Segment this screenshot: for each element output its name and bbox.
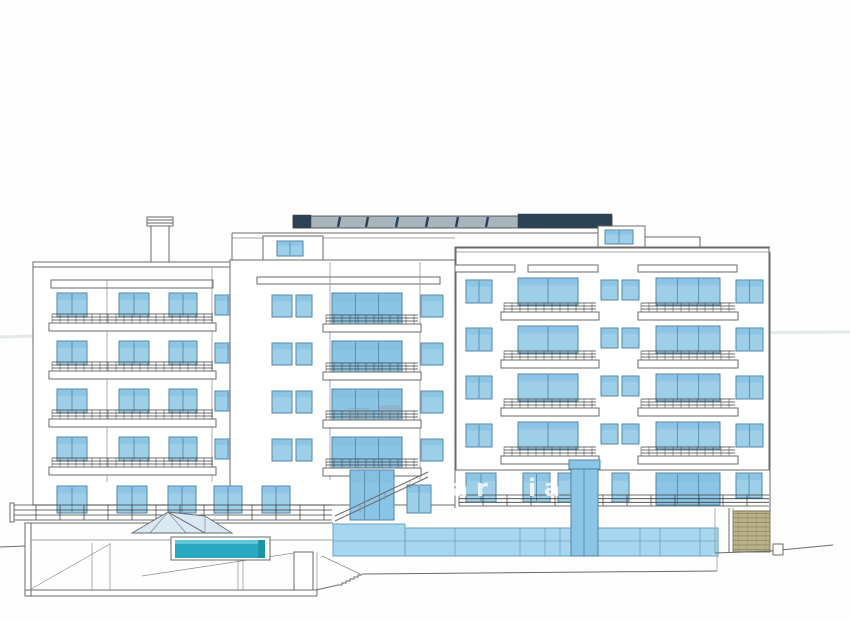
window-transom [422, 296, 442, 301]
window-transom [657, 474, 719, 482]
scan-streak [0, 336, 34, 337]
scan-smudge [345, 408, 373, 420]
window-transom [333, 390, 401, 398]
window-transom [273, 440, 291, 445]
window-transom [273, 344, 291, 349]
window-transom [623, 329, 638, 334]
balcony-slab [49, 467, 216, 475]
pool-waterline [175, 540, 265, 544]
sunshade-strip [528, 265, 598, 272]
watermark-fragment: a [452, 474, 468, 502]
window-transom [333, 342, 401, 350]
watermark-fragment: r [476, 474, 488, 502]
roof-box-right-2 [645, 237, 700, 247]
basement-left-wall [25, 523, 31, 596]
scan-smudge [377, 405, 403, 419]
window-transom [297, 440, 311, 445]
deck-glass-band [405, 528, 718, 556]
chimney [151, 226, 169, 262]
window-transom [623, 281, 638, 286]
watermark-fragment: e [327, 474, 343, 502]
window-transom [602, 329, 617, 334]
window-transom [602, 281, 617, 286]
window-transom [273, 296, 291, 301]
balcony-slab [49, 419, 216, 427]
balcony-slab [638, 456, 738, 464]
window-transom [602, 425, 617, 430]
window-transom [559, 474, 571, 481]
window-transom [333, 294, 401, 302]
balcony-slab [638, 408, 738, 416]
deck-glass-band [333, 524, 405, 556]
balcony-slab [501, 360, 599, 368]
window-transom [657, 327, 719, 333]
window-transom [297, 392, 311, 397]
window-transom [657, 423, 719, 429]
watermark-fragment: a [544, 474, 560, 502]
window-transom [422, 344, 442, 349]
balcony-slab [323, 372, 421, 380]
window-transom [623, 425, 638, 430]
elevator-shaft-cap [569, 460, 600, 469]
middle-cornice [257, 277, 440, 284]
building-elevation-drawing: earia [0, 0, 850, 622]
balcony-slab [323, 324, 421, 332]
garage-door [733, 511, 770, 552]
balcony-slab [49, 371, 216, 379]
scanned-elevation-page: earia [0, 0, 850, 622]
basement-door [294, 552, 313, 590]
sunshade-strip [455, 265, 515, 272]
chimney-cap [147, 217, 173, 226]
left-cornice [51, 280, 213, 288]
balcony-slab [638, 360, 738, 368]
balcony-slab [638, 312, 738, 320]
window-transom [297, 344, 311, 349]
window-transom [657, 279, 719, 285]
pool-deep-end [258, 540, 265, 558]
window-transom [613, 474, 628, 481]
window-transom [623, 377, 638, 382]
window-transom [657, 375, 719, 381]
watermark-fragment: i [528, 474, 536, 502]
window-transom [602, 377, 617, 382]
balcony-slab [49, 323, 216, 331]
fence-end-post [10, 503, 14, 522]
window-transom [422, 392, 442, 397]
balcony-slab [501, 312, 599, 320]
sunshade-strip [638, 265, 737, 272]
balcony-slab [501, 408, 599, 416]
window-transom [422, 440, 442, 445]
window-transom [333, 438, 401, 446]
solar-panel-dark-left [293, 215, 311, 228]
window-transom [273, 392, 291, 397]
ground-post [773, 544, 783, 555]
window-transom [297, 296, 311, 301]
window-transom [351, 471, 393, 483]
balcony-slab [323, 420, 421, 428]
elevator-shaft [571, 462, 598, 556]
